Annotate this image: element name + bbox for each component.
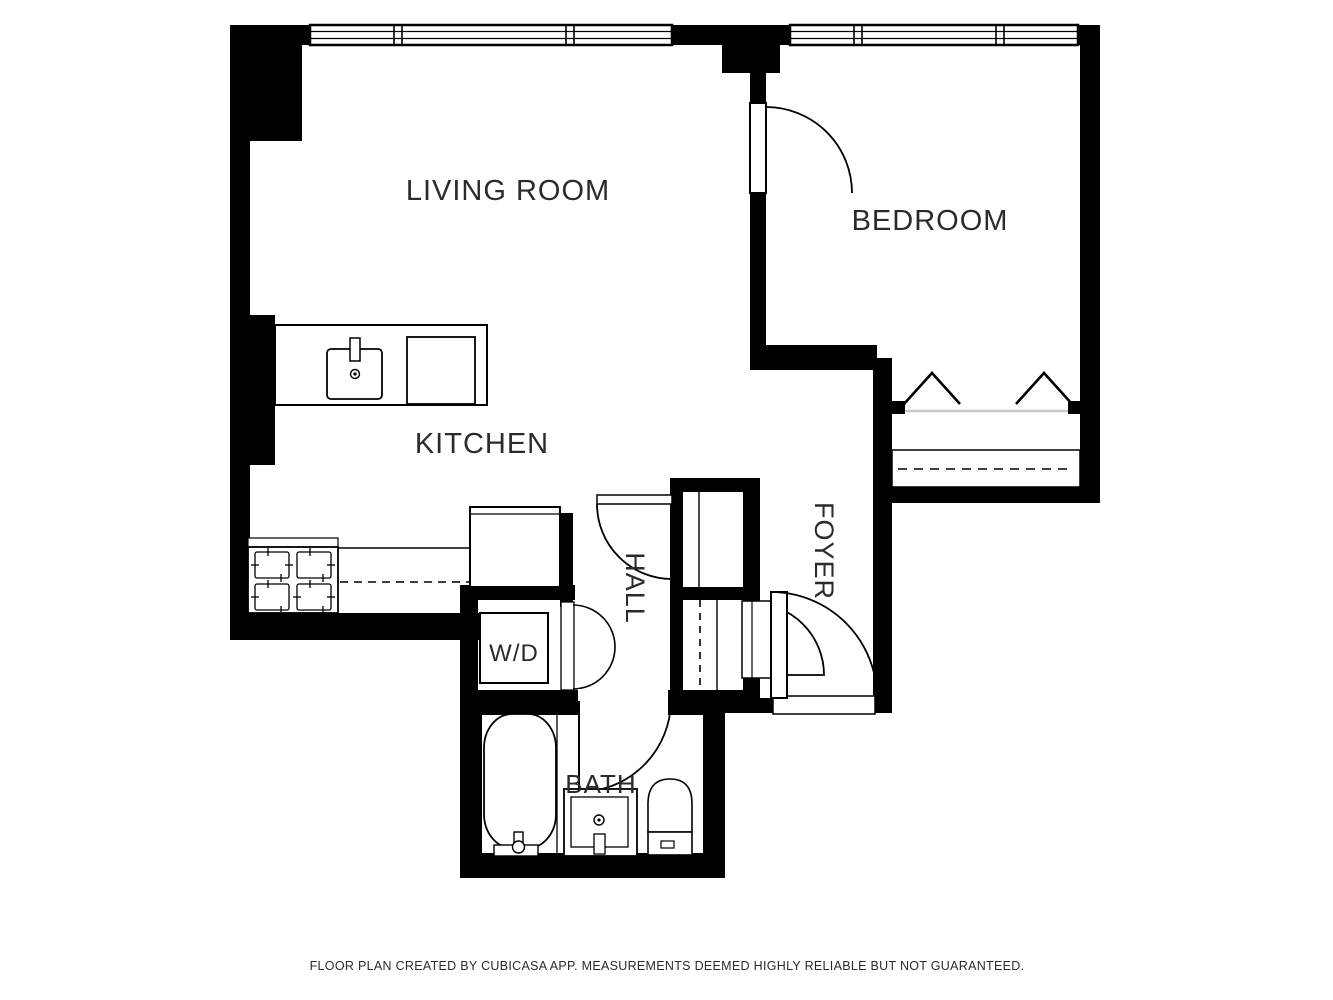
living-room-label: LIVING ROOM: [406, 175, 610, 207]
wall-segment: [750, 191, 766, 347]
bathtub-icon: [484, 714, 556, 856]
laundry-label: W/D: [489, 640, 539, 667]
wall-segment: [750, 345, 877, 370]
entry-threshold: [773, 696, 875, 714]
wall-segment: [873, 358, 892, 713]
wall-segment: [1080, 42, 1100, 503]
entry-door-leaf: [771, 592, 787, 698]
wall-segment: [230, 141, 250, 317]
floor-plan-canvas: LIVING ROOM BEDROOM KITCHEN HALL FOYER W…: [0, 0, 1333, 1000]
bath-label: BATH: [565, 769, 636, 799]
hall-closet-lower: [683, 600, 743, 690]
dishwasher-icon: [407, 337, 475, 404]
window-bedroom: [790, 25, 1078, 45]
wall-segment: [230, 463, 250, 615]
stove-icon: [248, 538, 338, 614]
wall-segment: [230, 25, 302, 141]
footer-disclaimer: FLOOR PLAN CREATED BY CUBICASA APP. MEAS…: [310, 959, 1025, 973]
wall-segment: [703, 700, 725, 878]
floor-plan-svg: LIVING ROOM BEDROOM KITCHEN HALL FOYER W…: [0, 0, 1333, 1000]
wall-segment: [460, 700, 482, 878]
hall-label: HALL: [620, 552, 650, 624]
wall-segment: [230, 613, 480, 640]
closet-jamb-nub: [892, 401, 905, 414]
wall-segment: [230, 315, 275, 465]
kitchen-label: KITCHEN: [415, 428, 549, 460]
refrigerator-icon: [470, 507, 560, 587]
wall-segment: [722, 42, 780, 73]
faucet-icon: [594, 834, 605, 854]
bedroom-label: BEDROOM: [852, 205, 1009, 237]
foyer-label: FOYER: [809, 502, 839, 600]
wall-segment: [873, 487, 1100, 503]
window-living-room: [310, 25, 672, 45]
hall-closet-upper: [683, 492, 743, 587]
faucet-icon: [350, 338, 360, 361]
wall-segment: [750, 73, 766, 105]
vanity-sink-icon: [564, 789, 637, 856]
toilet-icon: [648, 779, 692, 855]
